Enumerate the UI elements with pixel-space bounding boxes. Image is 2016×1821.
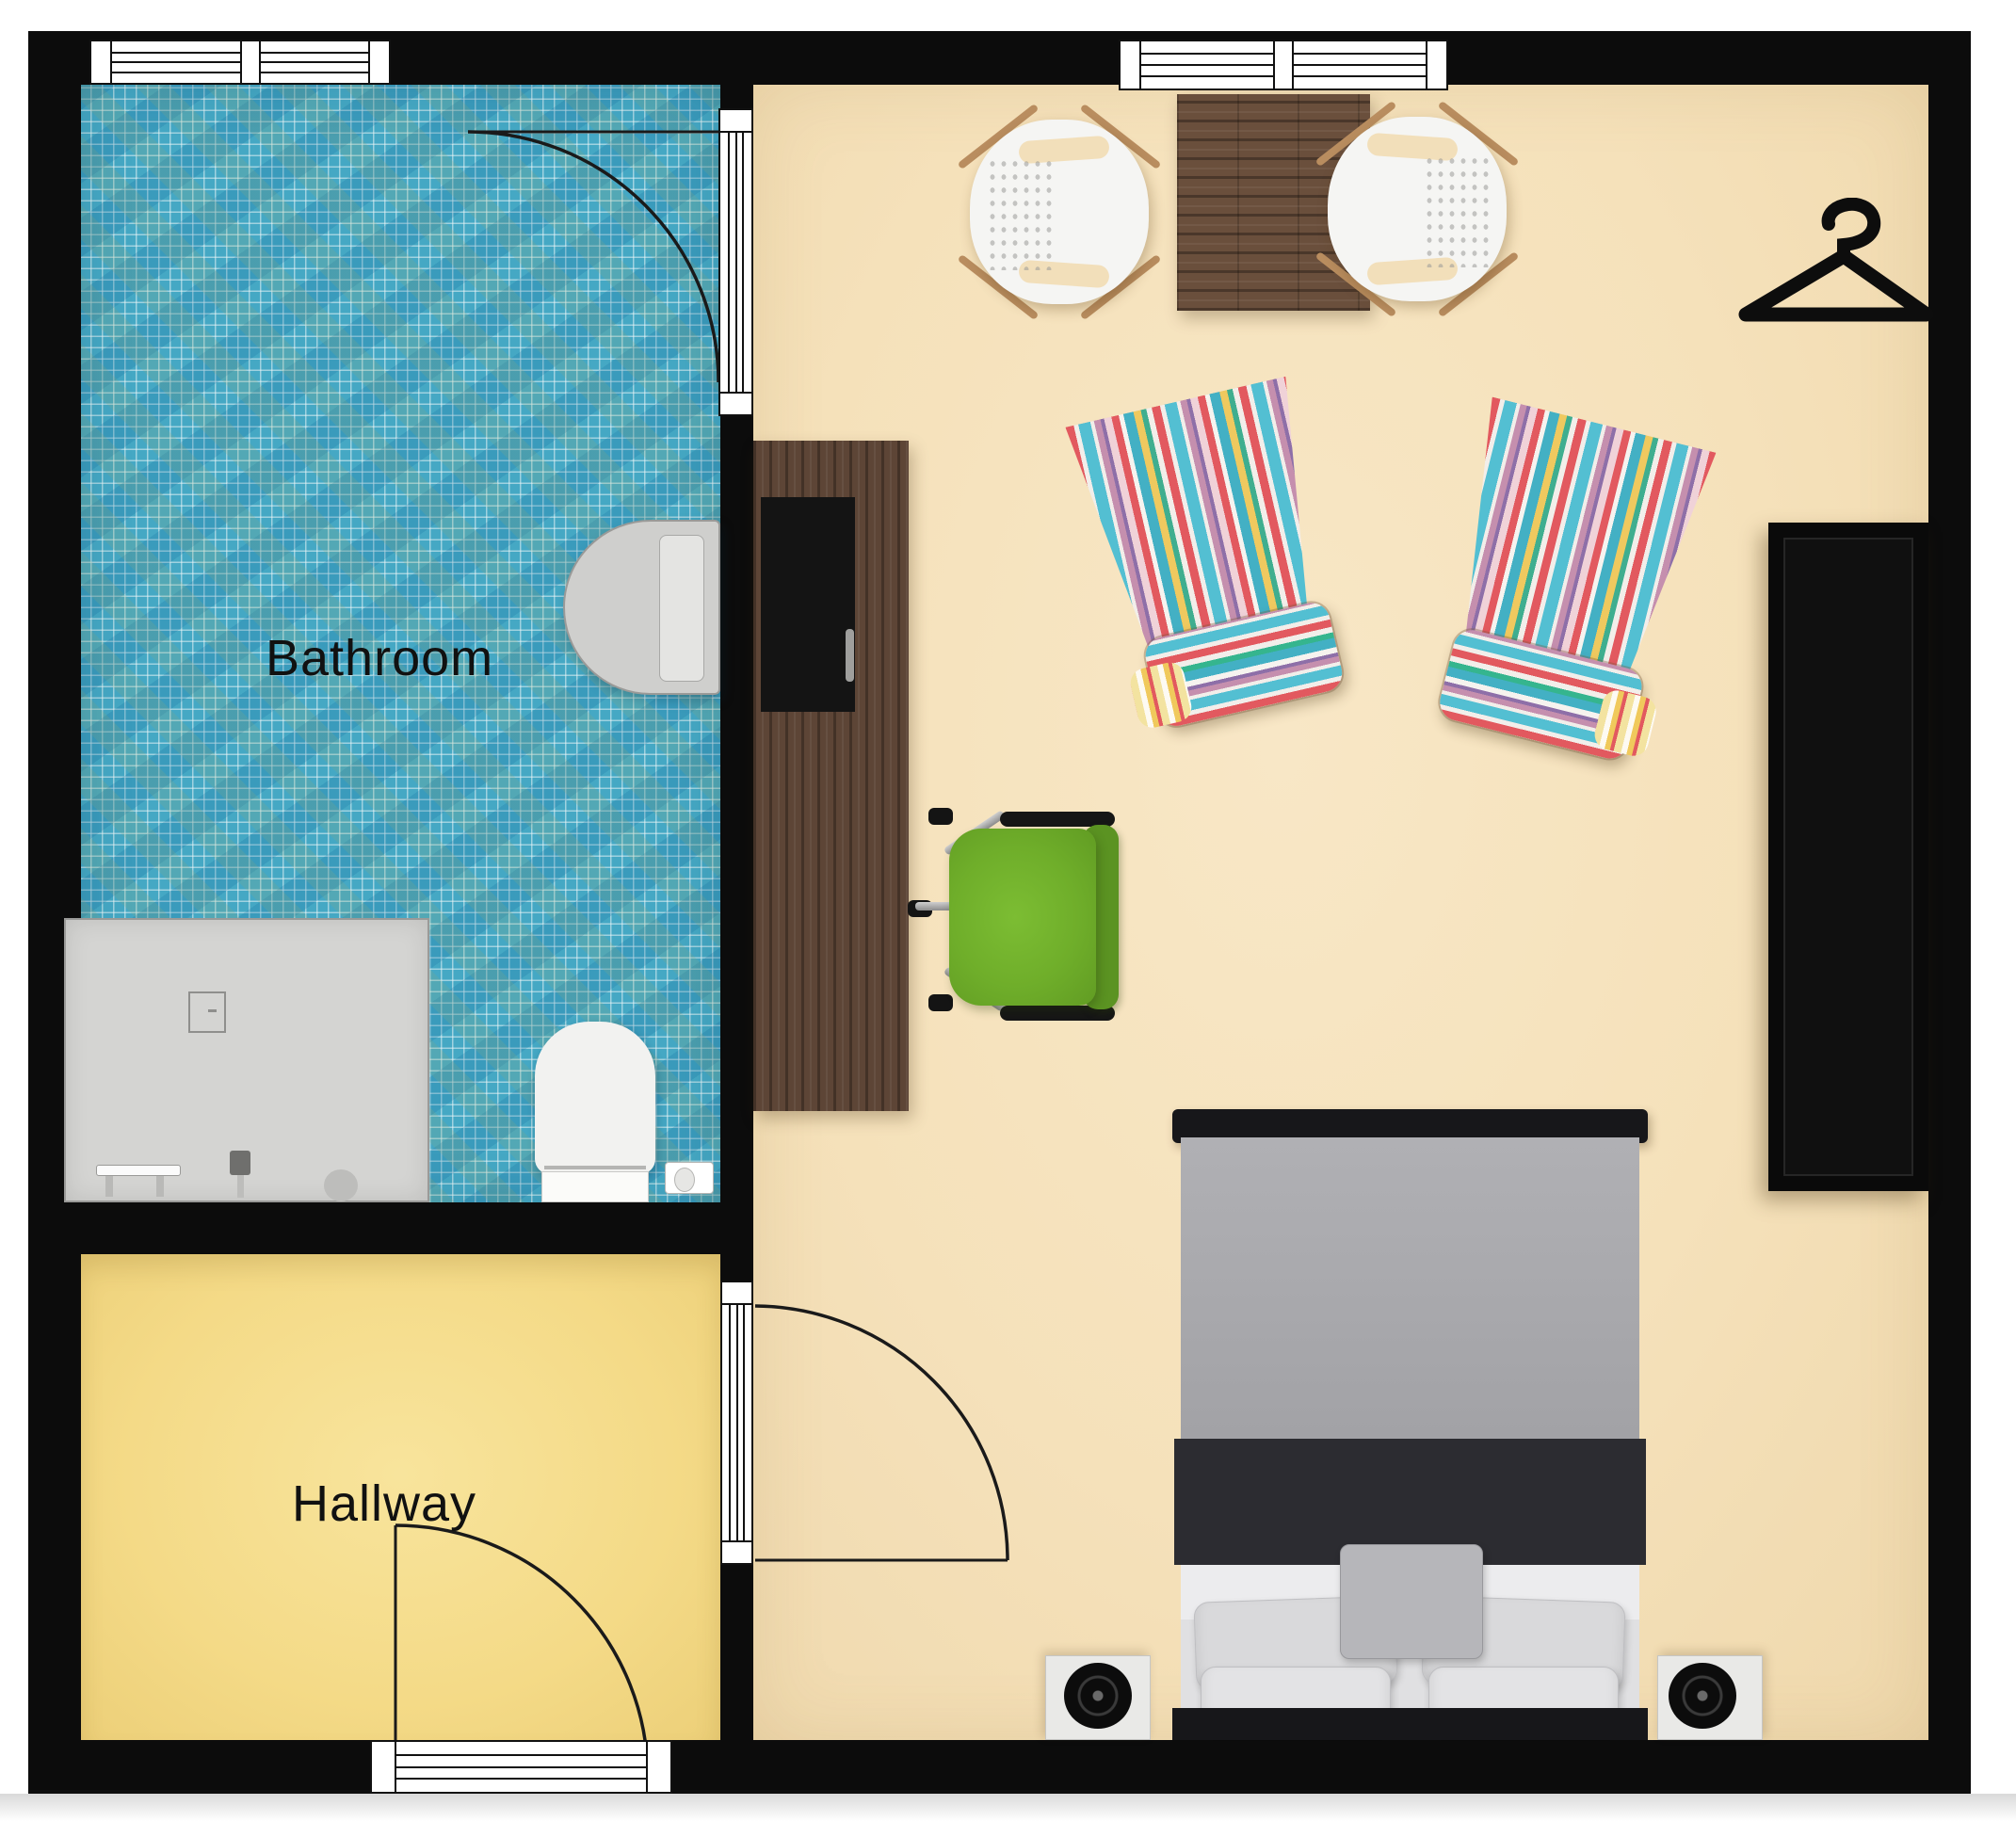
- desk[interactable]: [753, 441, 909, 1111]
- bedroom-window-cap-right: [1426, 40, 1448, 90]
- mixer-stem: [237, 1175, 244, 1198]
- bed[interactable]: [1172, 1109, 1648, 1740]
- shower-drain: [188, 991, 226, 1033]
- desk-monitor: [761, 497, 855, 712]
- toilet-paper-roll: [674, 1168, 695, 1192]
- chair-leaf-pattern: [987, 157, 1053, 270]
- dining-chair-right[interactable]: [1318, 105, 1516, 313]
- bathroom-door-cap-top: [718, 108, 753, 133]
- bathroom-door-cap-bottom: [718, 392, 753, 416]
- bed-headboard: [1172, 1708, 1648, 1740]
- nightstand-lamp-left: [1064, 1663, 1132, 1729]
- wall-interior-vertical-c: [720, 1565, 753, 1740]
- toilet-seat-line: [544, 1166, 646, 1169]
- entry-door-cap-left: [370, 1740, 396, 1794]
- chair-leaf-pattern: [1424, 154, 1490, 267]
- chair-seat: [949, 829, 1096, 1006]
- nightstand-lamp-right: [1669, 1663, 1736, 1729]
- floor-plan: Bathroom Hallway: [0, 0, 2016, 1821]
- bathroom-window-mullion: [240, 40, 261, 85]
- wall-left: [28, 31, 81, 1794]
- accent-pillow: [1340, 1544, 1483, 1659]
- hallway-label: Hallway: [292, 1475, 476, 1533]
- entry-door[interactable]: [370, 1740, 672, 1794]
- wall-interior-vertical-b: [720, 416, 753, 1281]
- wardrobe-door-panel: [1783, 538, 1913, 1176]
- floor-drain-circle: [324, 1169, 358, 1201]
- wall-interior-vertical-a: [720, 83, 753, 108]
- bathroom-window-cap-right: [368, 40, 391, 85]
- bedroom-window-cap-left: [1119, 40, 1141, 90]
- faucet-leg-right: [156, 1176, 164, 1197]
- bedroom-window-mullion: [1273, 40, 1294, 90]
- caster: [928, 994, 953, 1011]
- wall-bottom: [28, 1740, 1971, 1794]
- entry-door-cap-right: [646, 1740, 672, 1794]
- tray-mixer-knob: [230, 1151, 250, 1175]
- monitor-stand: [846, 629, 854, 682]
- sink-basin-edge: [659, 535, 704, 682]
- bathroom-window-cap-left: [89, 40, 112, 85]
- drain-slot: [208, 1009, 217, 1012]
- bathroom-label: Bathroom: [266, 629, 493, 687]
- bedroom-door-cap-top: [720, 1281, 753, 1305]
- tray-faucet: [96, 1165, 181, 1176]
- toilet[interactable]: [535, 1022, 655, 1174]
- wall-interior-horizontal: [28, 1202, 753, 1254]
- hanger-icon[interactable]: [1733, 198, 1944, 334]
- bed-duvet: [1181, 1137, 1639, 1439]
- dining-chair-left[interactable]: [960, 108, 1158, 315]
- faucet-leg-left: [105, 1176, 113, 1197]
- caster: [928, 808, 953, 825]
- toilet-tank: [541, 1171, 649, 1202]
- bathroom-door[interactable]: [718, 108, 753, 416]
- bedroom-door[interactable]: [720, 1281, 753, 1565]
- wardrobe[interactable]: [1768, 523, 1928, 1191]
- desk-chair[interactable]: [932, 800, 1130, 1036]
- bedroom-door-cap-bottom: [720, 1540, 753, 1565]
